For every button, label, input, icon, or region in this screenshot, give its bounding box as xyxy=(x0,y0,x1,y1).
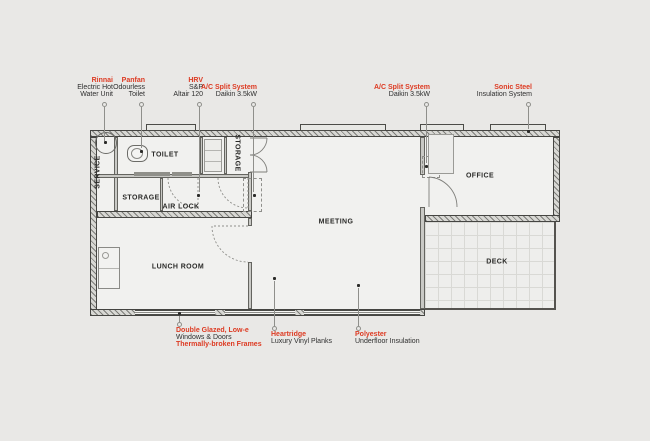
annotation-detail-emphasis: Thermally-broken Frames xyxy=(176,341,262,348)
leader-circle-heartridge xyxy=(272,326,277,331)
airlock-door-b xyxy=(218,178,248,208)
annotation-polyester: Polyester Underfloor Insulation xyxy=(355,331,420,345)
annotation-detail: Altair 120 xyxy=(173,91,203,98)
annotation-double-glazed: Double Glazed, Low-e Windows & Doors The… xyxy=(176,327,262,348)
annotation-detail: Daikin 3.5kW xyxy=(374,91,430,98)
room-label-storage-upper: STORAGE xyxy=(234,134,241,171)
room-label-service: SERVICE xyxy=(95,155,102,188)
room-label-meeting: MEETING xyxy=(319,219,354,226)
annotation-title: A/C Split System xyxy=(374,84,430,91)
annotation-ac-split-left: A/C Split System Daikin 3.5kW xyxy=(201,84,257,98)
leader-line-polyester xyxy=(358,288,359,326)
annotation-detail: Luxury Vinyl Planks xyxy=(271,338,332,345)
annotation-detail: S&P xyxy=(173,84,203,91)
annotation-panfan: Panfan Odourless Toilet xyxy=(113,77,145,98)
leader-dot-sonic-steel xyxy=(527,130,530,133)
leader-line-hrv xyxy=(199,107,200,192)
leader-dot-hrv xyxy=(197,194,200,197)
annotation-detail: Underfloor Insulation xyxy=(355,338,420,345)
leader-circle-double-glazed xyxy=(177,322,182,327)
leader-dot-polyester xyxy=(357,284,360,287)
leader-line-sonic-steel xyxy=(528,107,529,129)
leader-dot-ac-right xyxy=(425,165,428,168)
annotation-title: Polyester xyxy=(355,331,420,338)
annotation-detail: Daikin 3.5kW xyxy=(201,91,257,98)
annotation-detail: Windows & Doors xyxy=(176,334,262,341)
lunch-door xyxy=(212,226,248,262)
leader-line-panfan xyxy=(141,107,142,148)
annotation-rinnai: Rinnai Electric Hot Water Unit xyxy=(77,77,113,98)
annotation-detail: Toilet xyxy=(113,91,145,98)
annotation-title: Heartridge xyxy=(271,331,332,338)
floor-plan: SERVICE TOILET STORAGE STORAGE AIR LOCK … xyxy=(0,0,650,441)
annotation-detail: Water Unit xyxy=(77,91,113,98)
annotation-detail: Insulation System xyxy=(477,91,532,98)
annotation-heartridge: Heartridge Luxury Vinyl Planks xyxy=(271,331,332,345)
annotation-detail: Electric Hot xyxy=(77,84,113,91)
annotation-title: Panfan xyxy=(113,77,145,84)
leader-dot-rinnai xyxy=(104,141,107,144)
room-label-office: OFFICE xyxy=(466,173,494,180)
leader-dot-ac-left xyxy=(253,194,256,197)
leader-dot-heartridge xyxy=(273,277,276,280)
room-label-deck: DECK xyxy=(486,259,507,266)
leader-dot-double-glazed xyxy=(178,312,181,315)
leader-dot-panfan xyxy=(140,150,143,153)
annotation-detail: Odourless xyxy=(113,84,145,91)
annotation-ac-split-right: A/C Split System Daikin 3.5kW xyxy=(374,84,430,98)
leader-line-ac-right xyxy=(426,107,427,163)
annotation-title: Double Glazed, Low-e xyxy=(176,327,262,334)
annotation-hrv: HRV S&P Altair 120 xyxy=(173,77,203,98)
leader-line-heartridge xyxy=(274,281,275,326)
leader-line-ac-left xyxy=(253,107,254,192)
annotation-title: Rinnai xyxy=(77,77,113,84)
annotation-title: HRV xyxy=(173,77,203,84)
office-door xyxy=(429,177,457,207)
leader-circle-polyester xyxy=(356,326,361,331)
room-label-air-lock: AIR LOCK xyxy=(162,204,199,211)
room-label-toilet: TOILET xyxy=(151,152,178,159)
annotation-title: A/C Split System xyxy=(201,84,257,91)
annotation-sonic-steel: Sonic Steel Insulation System xyxy=(477,84,532,98)
room-label-lunch-room: LUNCH ROOM xyxy=(152,264,204,271)
leader-line-rinnai xyxy=(104,107,105,141)
annotation-title: Sonic Steel xyxy=(477,84,532,91)
room-label-storage-lower: STORAGE xyxy=(122,195,159,202)
